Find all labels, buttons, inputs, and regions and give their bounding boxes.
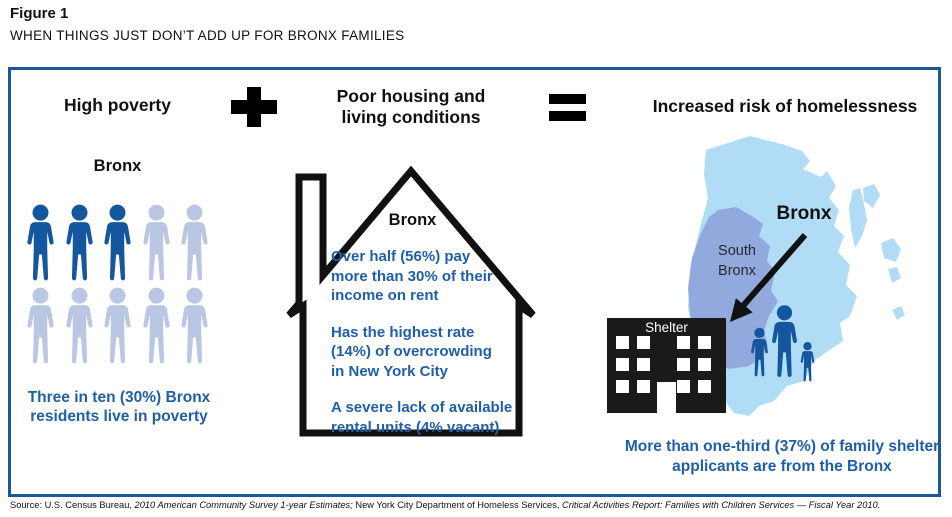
- person-icon-in-poverty: [101, 204, 134, 284]
- island-shape: [888, 267, 901, 283]
- homelessness-caption: More than one-third (37%) of family shel…: [622, 437, 942, 477]
- heading-poor-housing: Poor housing and living conditions: [325, 86, 497, 128]
- person-icon: [140, 287, 173, 367]
- source-prefix: Source: U.S. Census Bureau,: [10, 500, 135, 510]
- poverty-icon-grid: [24, 204, 216, 367]
- island-shape: [863, 184, 880, 208]
- person-icon: [178, 287, 211, 367]
- heading-homelessness-risk: Increased risk of homelessness: [630, 96, 940, 117]
- source-citation: Critical Activities Report: Families wit…: [562, 500, 880, 510]
- south-bronx-label: South Bronx: [705, 241, 769, 281]
- housing-facts: Over half (56%) paymore than 30% of thei…: [331, 247, 526, 454]
- poverty-caption: Three in ten (30%) Bronx residents live …: [10, 388, 228, 426]
- housing-region-label: Bronx: [340, 211, 485, 230]
- housing-fact: Over half (56%) paymore than 30% of thei…: [331, 247, 526, 306]
- island-shape: [881, 238, 901, 262]
- housing-fact: A severe lack of availablerental units (…: [331, 398, 526, 437]
- shelter-label: Shelter: [607, 320, 726, 335]
- person-icon-in-poverty: [24, 204, 57, 284]
- housing-fact: Has the highest rate(14%) of overcrowdin…: [331, 323, 526, 382]
- source-middle: New York City Department of Homeless Ser…: [353, 500, 562, 510]
- person-icon: [178, 204, 211, 284]
- child-icon: [799, 341, 816, 384]
- person-icon: [63, 287, 96, 367]
- child-icon: [749, 324, 770, 382]
- person-icon: [140, 204, 173, 284]
- figure-label: Figure 1: [10, 5, 68, 22]
- heading-high-poverty: High poverty: [25, 95, 210, 116]
- adult-icon: [769, 301, 800, 384]
- map-bronx-label: Bronx: [744, 203, 864, 225]
- figure-title: WHEN THINGS JUST DON’T ADD UP FOR BRONX …: [10, 28, 404, 43]
- person-icon: [101, 287, 134, 367]
- source-citation: 2010 American Community Survey 1-year Es…: [135, 500, 353, 510]
- person-icon-in-poverty: [63, 204, 96, 284]
- source-line: Source: U.S. Census Bureau, 2010 America…: [10, 500, 948, 510]
- poverty-region-label: Bronx: [25, 157, 210, 176]
- equals-icon: [549, 94, 586, 121]
- person-icon: [24, 287, 57, 367]
- island-shape: [892, 306, 905, 320]
- plus-icon: [231, 87, 277, 127]
- figure-page: Figure 1 WHEN THINGS JUST DON’T ADD UP F…: [0, 0, 952, 517]
